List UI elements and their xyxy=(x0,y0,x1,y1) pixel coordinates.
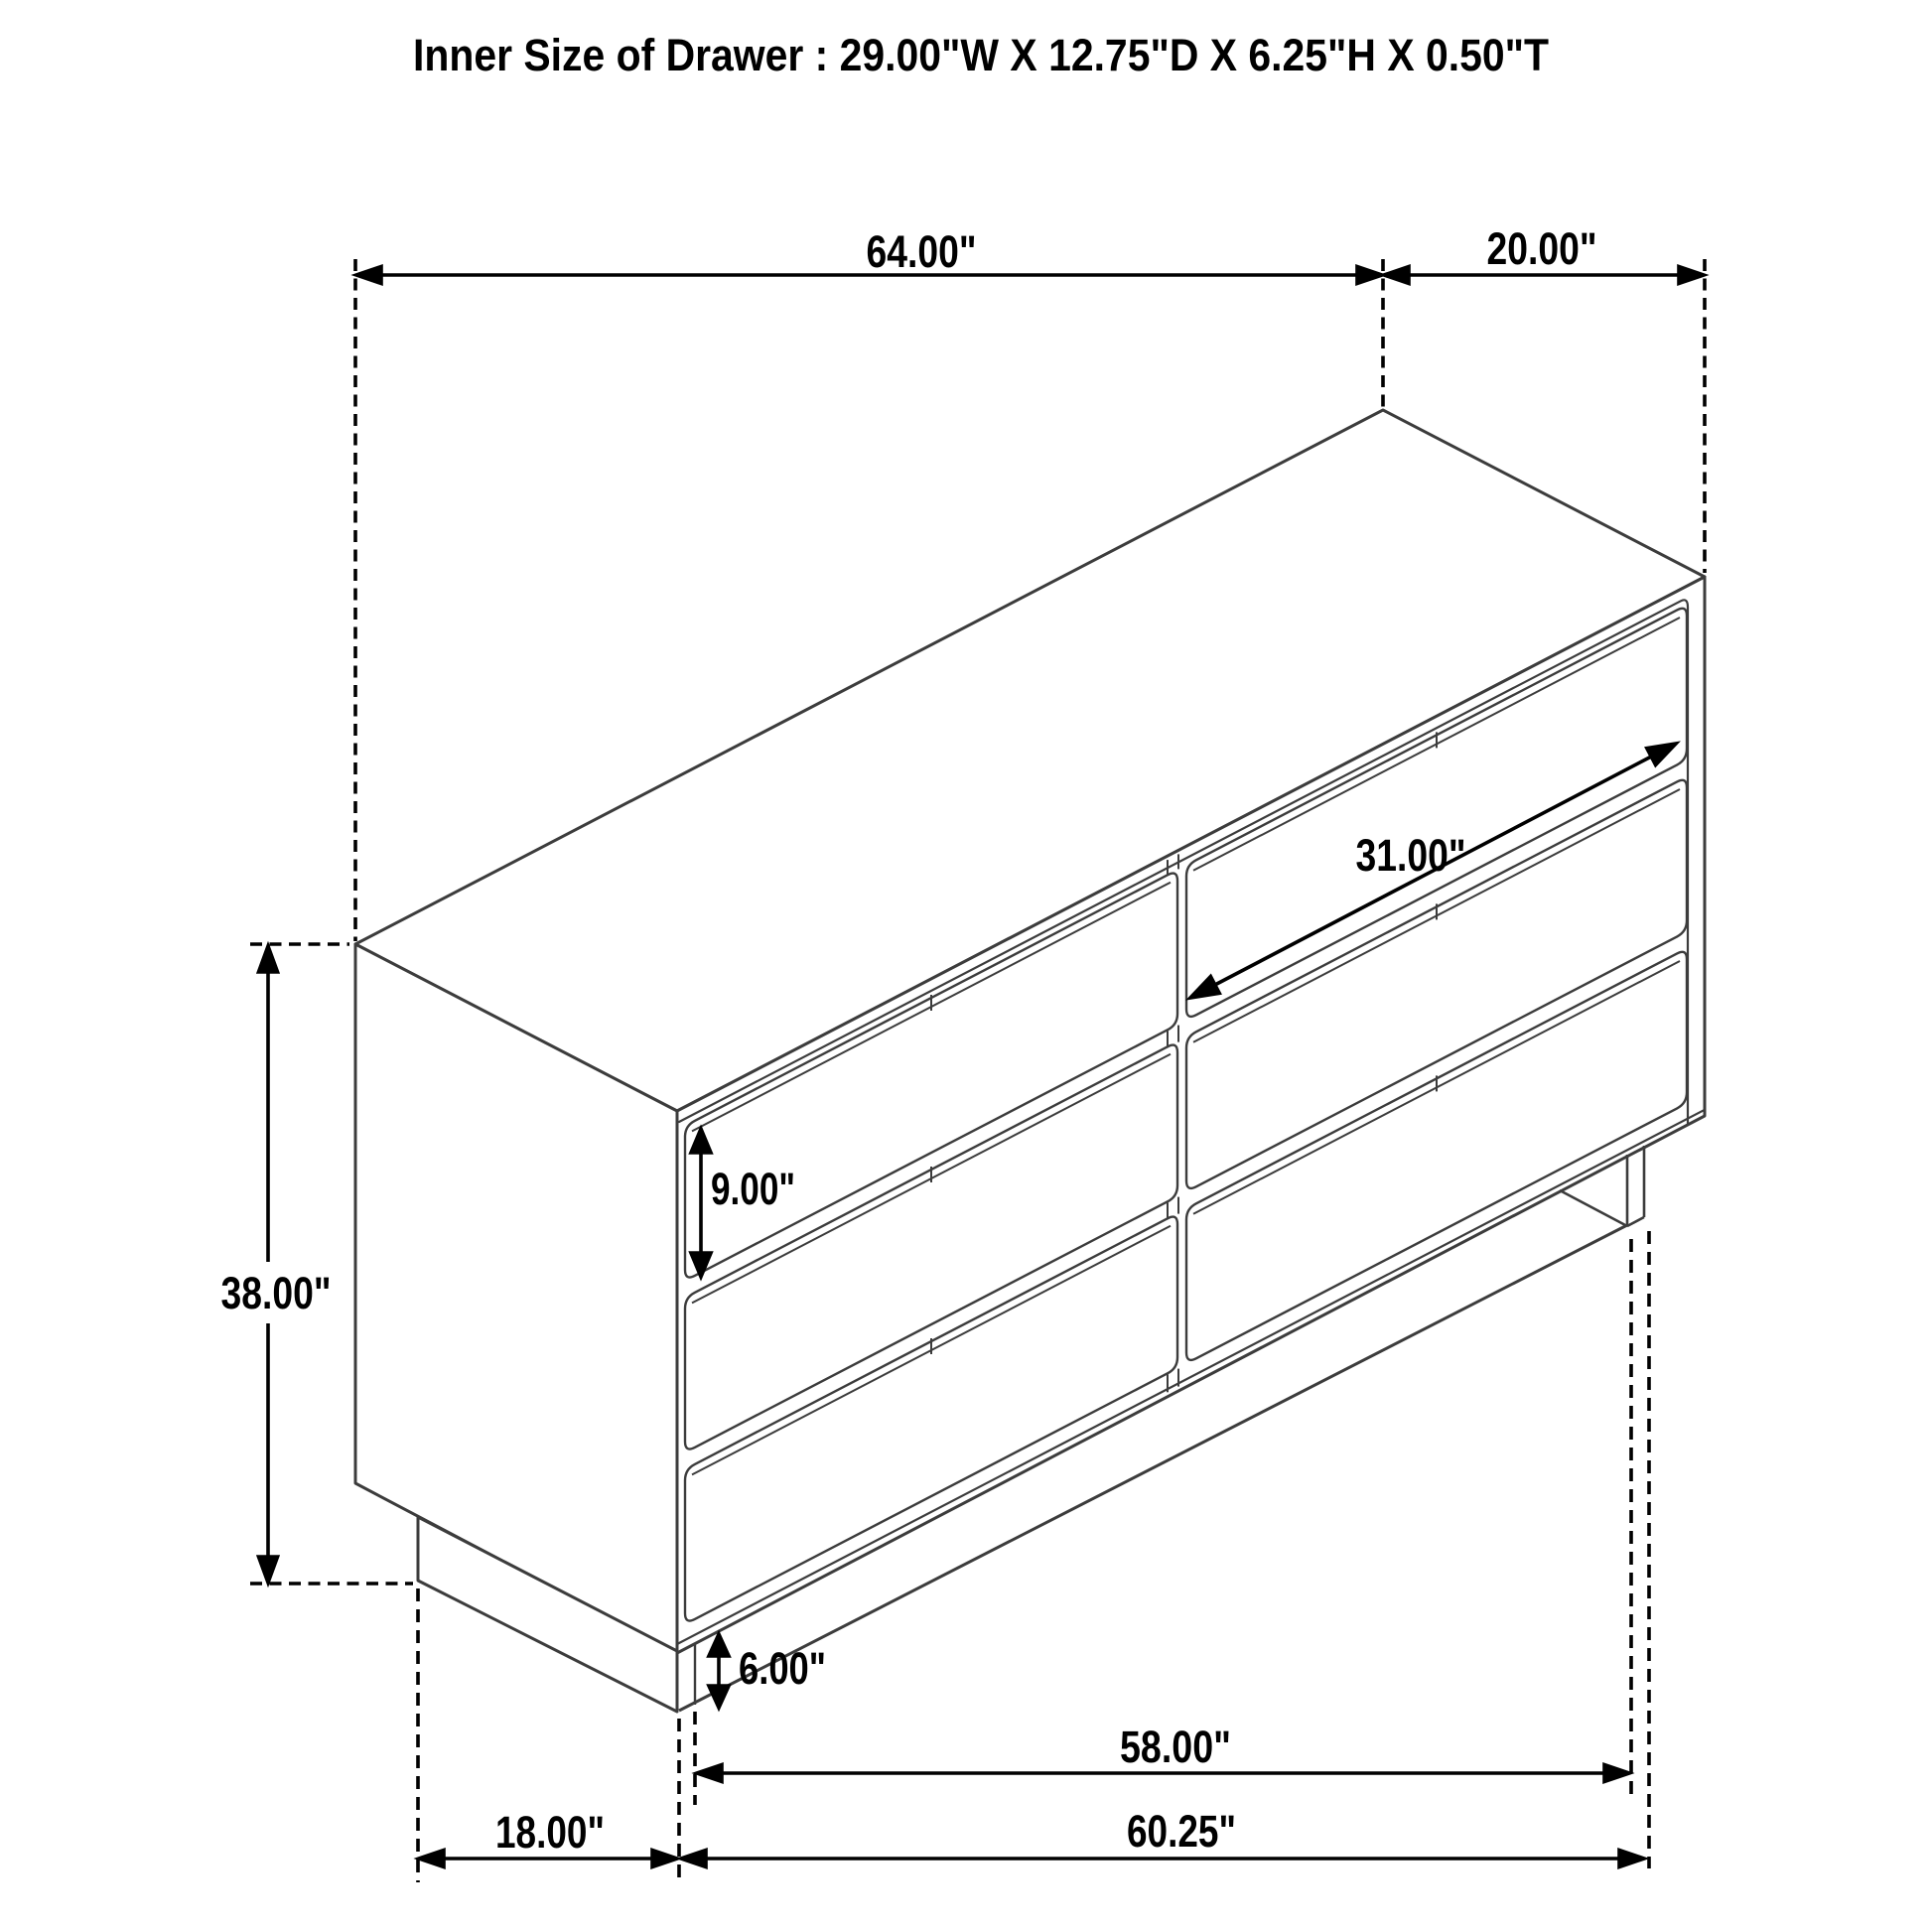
svg-text:38.00": 38.00" xyxy=(221,1268,332,1318)
svg-text:58.00": 58.00" xyxy=(1120,1722,1231,1772)
svg-text:18.00": 18.00" xyxy=(495,1807,605,1858)
svg-text:9.00": 9.00" xyxy=(711,1164,795,1214)
svg-text:20.00": 20.00" xyxy=(1487,223,1597,274)
svg-text:Inner Size of Drawer : 29.00"W: Inner Size of Drawer : 29.00"W X 12.75"D… xyxy=(413,30,1549,80)
svg-text:64.00": 64.00" xyxy=(867,226,977,277)
svg-text:6.00": 6.00" xyxy=(739,1643,826,1694)
svg-text:31.00": 31.00" xyxy=(1356,830,1466,881)
svg-text:60.25": 60.25" xyxy=(1127,1806,1236,1857)
